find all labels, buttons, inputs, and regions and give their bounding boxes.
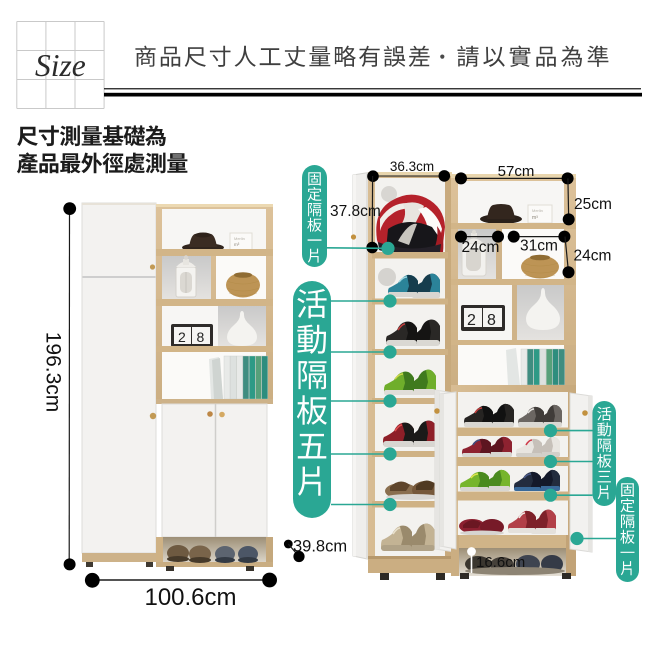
svg-text:m³: m³ [532, 215, 538, 221]
svg-text:Merlin: Merlin [234, 236, 245, 241]
svg-text:2: 2 [178, 329, 186, 345]
svg-text:2: 2 [467, 312, 476, 329]
svg-text:39.8cm: 39.8cm [293, 538, 347, 556]
svg-text:Size: Size [35, 48, 86, 83]
svg-text:16.6cm: 16.6cm [476, 554, 525, 571]
svg-text:31cm: 31cm [520, 238, 558, 255]
svg-text:100.6cm: 100.6cm [144, 584, 236, 611]
svg-text:8: 8 [487, 312, 496, 329]
svg-text:37.8cm: 37.8cm [330, 203, 381, 220]
svg-text:36.3cm: 36.3cm [390, 159, 434, 174]
svg-text:25cm: 25cm [574, 196, 612, 213]
svg-text:Merlin: Merlin [532, 208, 543, 213]
svg-text:m³: m³ [234, 242, 240, 247]
svg-text:24cm: 24cm [462, 239, 500, 256]
svg-text:196.3cm: 196.3cm [42, 332, 65, 413]
svg-text:57cm: 57cm [498, 163, 535, 180]
svg-text:24cm: 24cm [574, 248, 612, 265]
svg-text:8: 8 [197, 329, 205, 345]
